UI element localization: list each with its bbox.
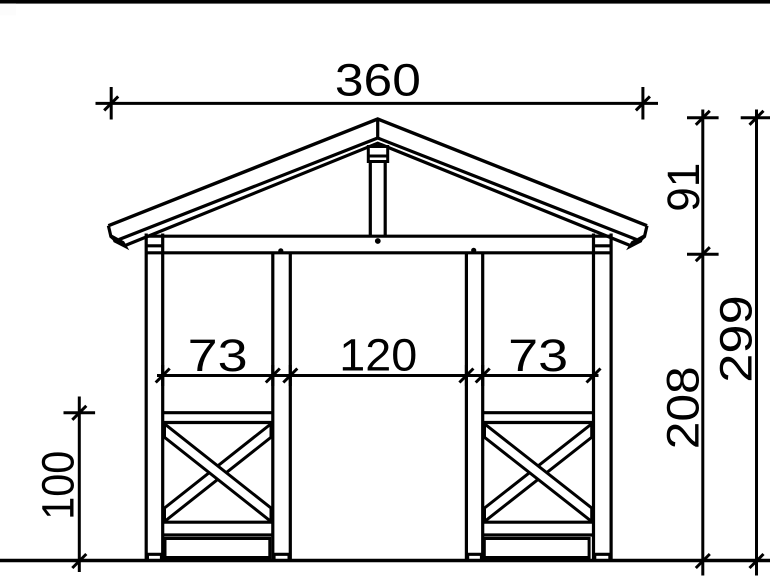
svg-text:73: 73	[508, 330, 568, 381]
svg-text:208: 208	[657, 366, 708, 449]
svg-text:91: 91	[658, 163, 709, 212]
svg-text:100: 100	[32, 451, 83, 520]
svg-text:360: 360	[335, 55, 421, 106]
svg-text:120: 120	[339, 330, 417, 381]
svg-text:73: 73	[188, 330, 248, 381]
svg-text:299: 299	[710, 295, 761, 383]
